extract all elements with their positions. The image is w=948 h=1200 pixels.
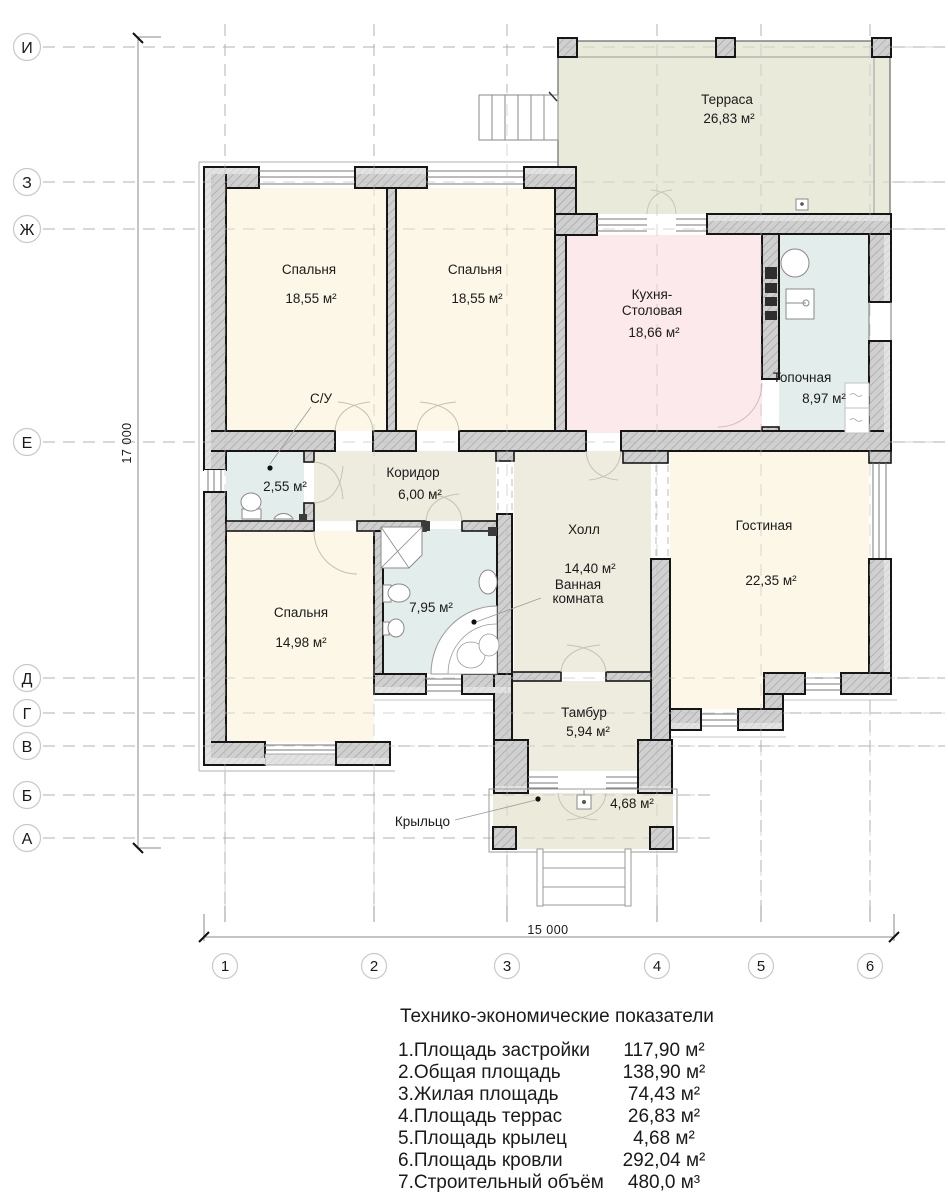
svg-text:Топочная: Топочная: [773, 370, 832, 385]
svg-text:И: И: [21, 40, 33, 57]
svg-text:2,55 м²: 2,55 м²: [263, 479, 307, 494]
svg-text:6.Площадь кровли: 6.Площадь кровли: [398, 1150, 563, 1171]
svg-text:Коридор: Коридор: [386, 465, 439, 480]
svg-text:14,98 м²: 14,98 м²: [275, 635, 327, 650]
svg-text:18,55 м²: 18,55 м²: [451, 291, 503, 306]
svg-text:Е: Е: [22, 435, 33, 452]
svg-text:Технико-экономические показате: Технико-экономические показатели: [400, 1006, 714, 1027]
svg-text:4,68 м²: 4,68 м²: [633, 1128, 695, 1149]
svg-text:7,95 м²: 7,95 м²: [409, 600, 453, 615]
svg-text:Терраса: Терраса: [701, 92, 753, 107]
svg-text:Крыльцо: Крыльцо: [395, 814, 450, 829]
svg-text:4,68 м²: 4,68 м²: [610, 796, 654, 811]
svg-text:Столовая: Столовая: [622, 303, 682, 318]
svg-text:480,0 м³: 480,0 м³: [628, 1172, 700, 1193]
svg-text:2.Общая площадь: 2.Общая площадь: [398, 1062, 561, 1083]
svg-text:2: 2: [370, 958, 378, 975]
svg-text:138,90 м²: 138,90 м²: [623, 1062, 706, 1083]
svg-text:3: 3: [503, 958, 511, 975]
svg-text:Ж: Ж: [20, 222, 35, 239]
svg-text:Спальня: Спальня: [282, 262, 336, 277]
svg-text:117,90 м²: 117,90 м²: [623, 1040, 704, 1061]
svg-text:15 000: 15 000: [527, 923, 568, 937]
svg-text:Спальня: Спальня: [274, 605, 328, 620]
svg-text:22,35 м²: 22,35 м²: [745, 573, 797, 588]
svg-text:1: 1: [221, 958, 229, 975]
svg-text:Д: Д: [22, 671, 33, 688]
svg-text:74,43 м²: 74,43 м²: [628, 1084, 700, 1105]
svg-text:5.Площадь крылец: 5.Площадь крылец: [398, 1128, 567, 1149]
svg-text:В: В: [22, 739, 33, 756]
svg-text:Ванная: Ванная: [555, 577, 601, 592]
svg-text:Спальня: Спальня: [448, 262, 502, 277]
svg-text:8,97 м²: 8,97 м²: [802, 391, 846, 406]
svg-text:4: 4: [653, 958, 661, 975]
svg-text:26,83 м²: 26,83 м²: [703, 111, 755, 126]
svg-text:Б: Б: [22, 788, 33, 805]
svg-text:Холл: Холл: [568, 522, 600, 537]
svg-text:18,66 м²: 18,66 м²: [628, 325, 680, 340]
svg-text:5: 5: [757, 958, 765, 975]
svg-text:5,94 м²: 5,94 м²: [566, 724, 610, 739]
svg-text:6: 6: [866, 958, 874, 975]
svg-text:4.Площадь террас: 4.Площадь террас: [398, 1106, 562, 1127]
svg-text:З: З: [22, 175, 32, 192]
svg-text:Г: Г: [23, 706, 32, 723]
svg-text:Гостиная: Гостиная: [736, 518, 793, 533]
svg-text:6,00 м²: 6,00 м²: [398, 487, 442, 502]
svg-text:1.Площадь застройки: 1.Площадь застройки: [398, 1040, 590, 1061]
svg-text:комната: комната: [552, 591, 604, 606]
svg-text:Кухня-: Кухня-: [632, 287, 673, 302]
svg-text:14,40 м²: 14,40 м²: [564, 561, 616, 576]
svg-text:292,04 м²: 292,04 м²: [623, 1150, 706, 1171]
svg-text:С/У: С/У: [310, 391, 333, 406]
svg-text:18,55 м²: 18,55 м²: [285, 291, 337, 306]
svg-text:А: А: [22, 831, 33, 848]
svg-text:Тамбур: Тамбур: [561, 705, 607, 720]
svg-text:26,83 м²: 26,83 м²: [628, 1106, 700, 1127]
svg-text:7.Строительный объём: 7.Строительный объём: [398, 1172, 604, 1193]
svg-text:17 000: 17 000: [120, 422, 134, 463]
svg-text:3.Жилая площадь: 3.Жилая площадь: [398, 1084, 559, 1105]
